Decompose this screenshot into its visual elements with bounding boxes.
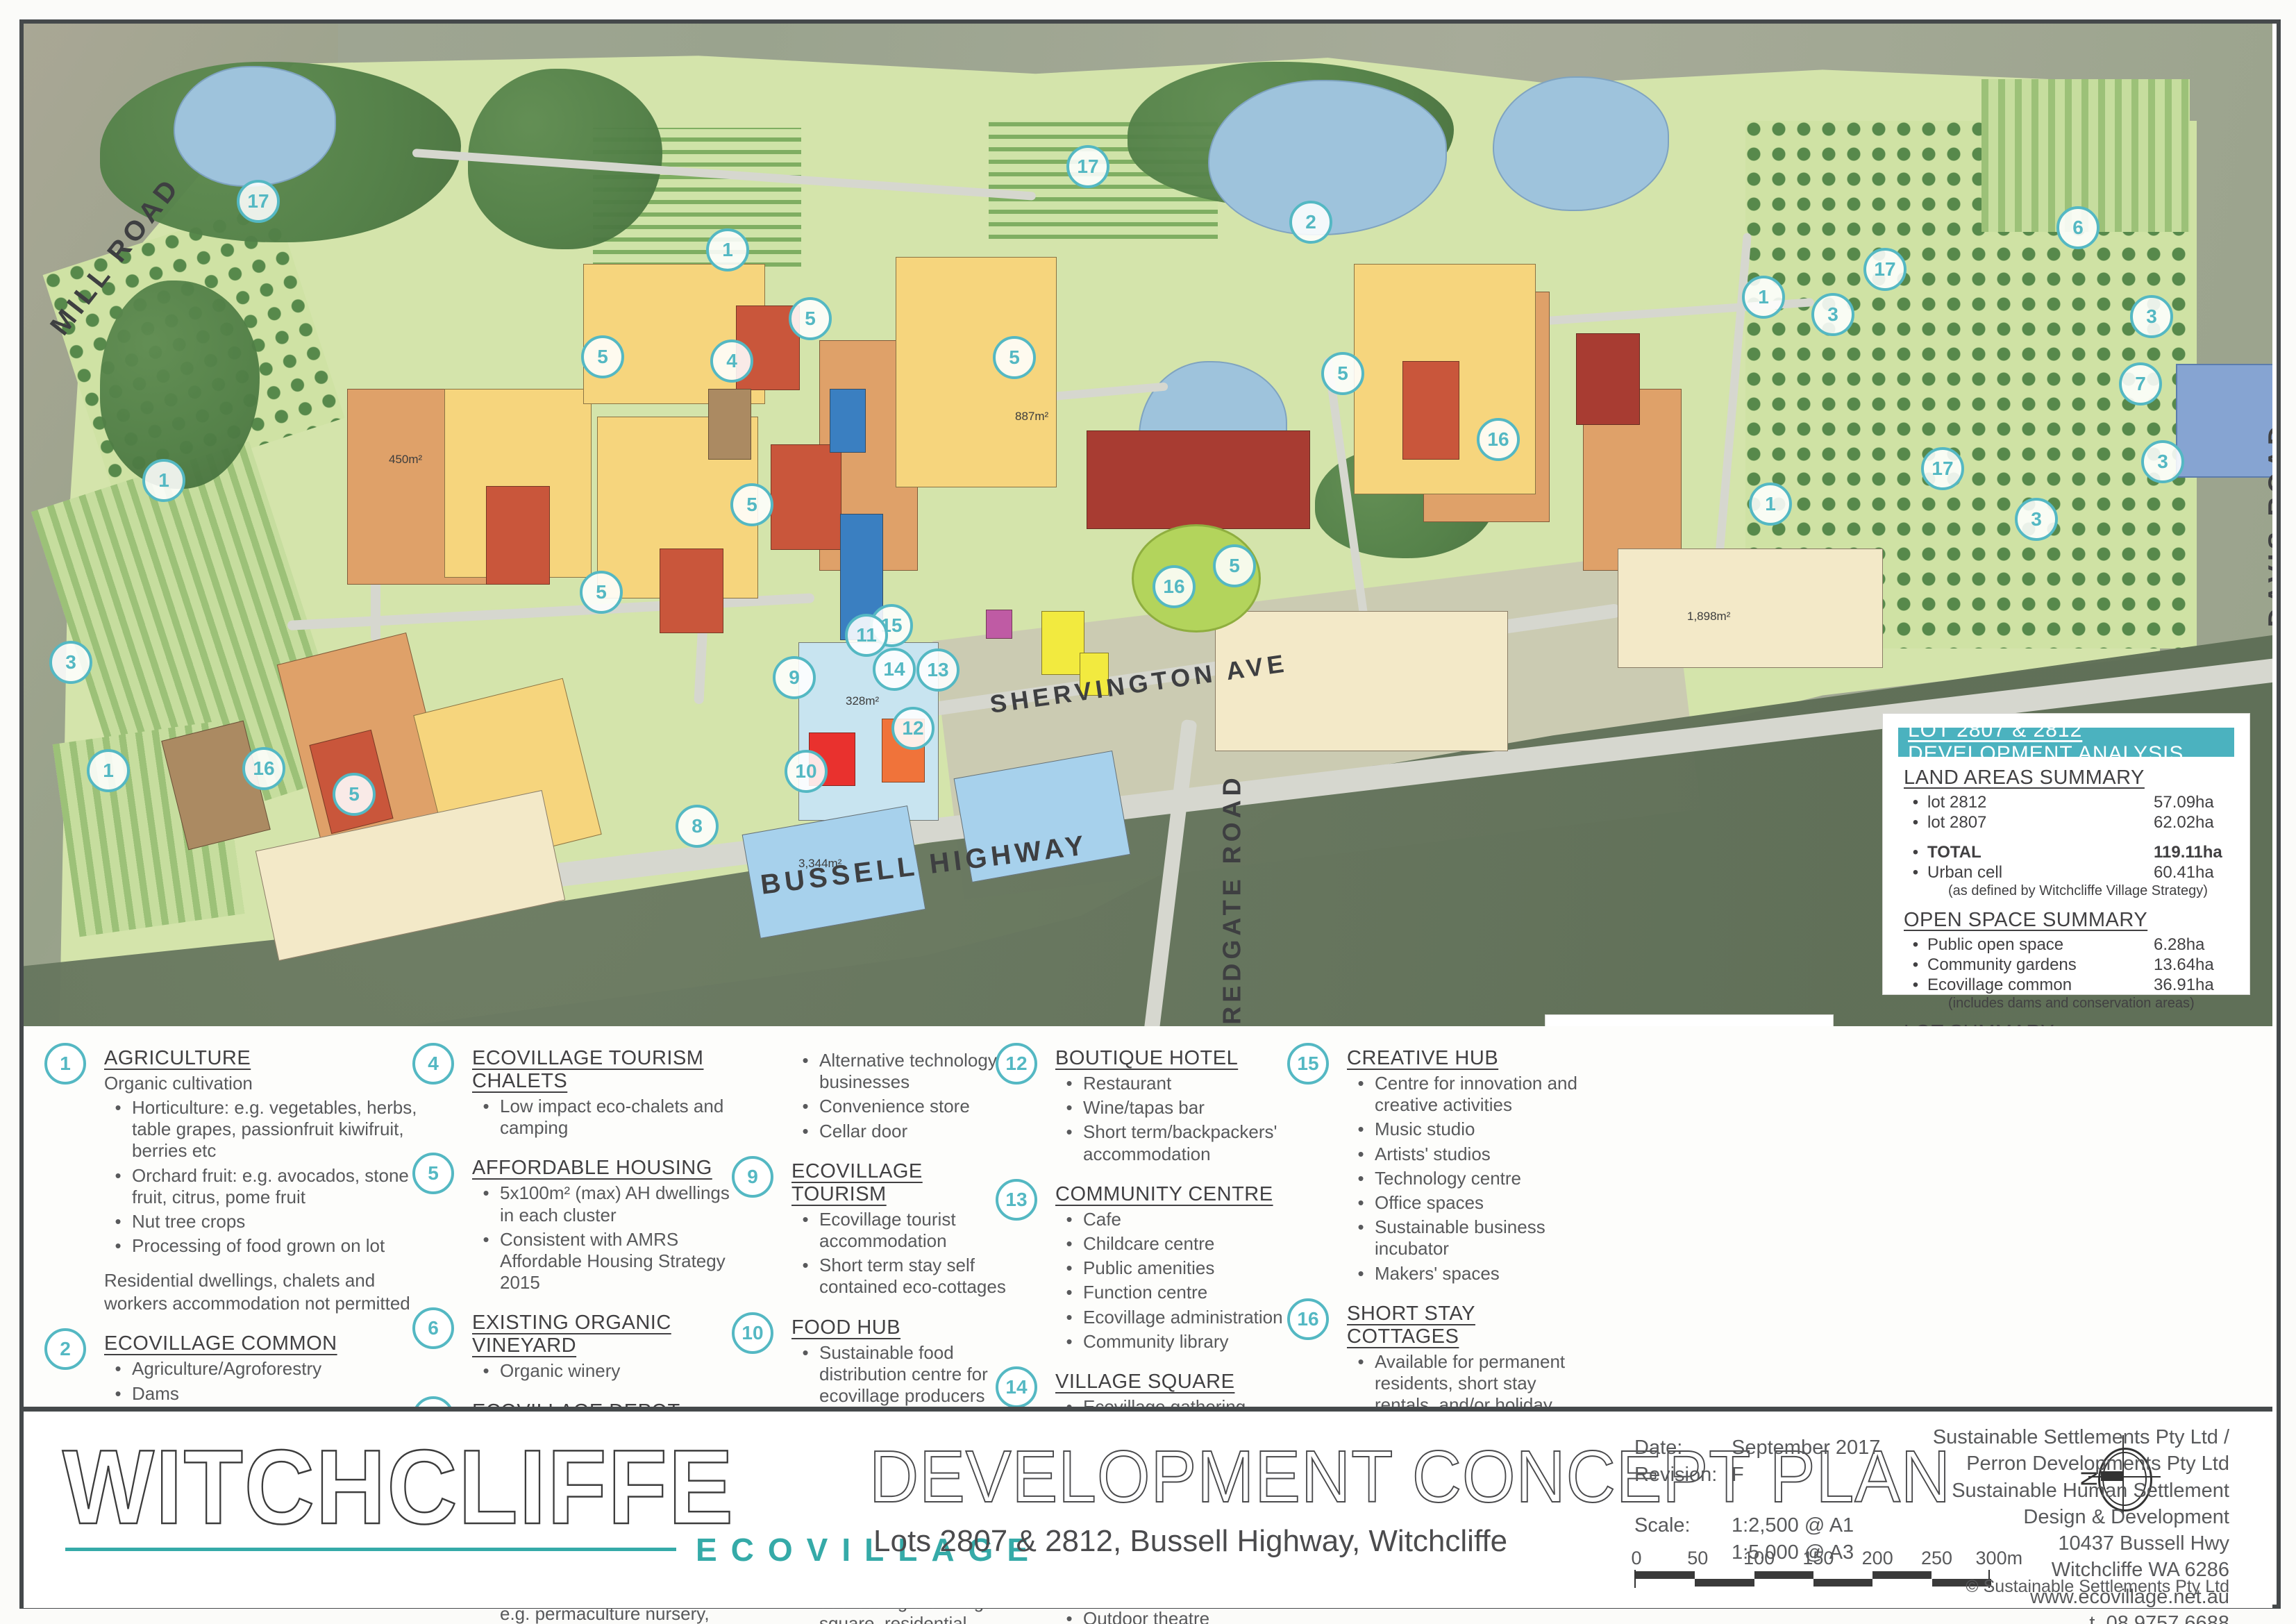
- map-marker-16: 16: [1477, 418, 1520, 461]
- note-bullet: •Organic winery: [472, 1360, 739, 1382]
- map-marker-3: 3: [2130, 295, 2173, 338]
- creative-hub-lot: [986, 610, 1012, 639]
- note-bullet: •Sustainable business incubator: [1347, 1216, 1586, 1259]
- note-bullet: •Ecovillage administration: [1055, 1307, 1287, 1328]
- analysis-note: (includes dams and conservation areas): [1904, 995, 2237, 1012]
- note-number-badge: 14: [996, 1366, 1037, 1408]
- notes-area: 1AGRICULTUREOrganic cultivation•Horticul…: [24, 1026, 2272, 1407]
- map-marker-14: 14: [873, 648, 916, 691]
- analysis-row: [1904, 832, 2237, 842]
- date-label: Date:: [1634, 1437, 1732, 1459]
- note-number-badge: 10: [732, 1312, 773, 1354]
- title-block: WITCHCLIFFE ECOVILLAGE DEVELOPMENT CONCE…: [24, 1407, 2272, 1608]
- analysis-section: LAND AREAS SUMMARY•lot 281257.09ha•lot 2…: [1904, 767, 2237, 899]
- scalebar-label: 100: [1743, 1548, 1775, 1569]
- note-number-badge: 13: [996, 1179, 1037, 1221]
- map-marker-3: 3: [2015, 498, 2058, 541]
- scalebar-label: 150: [1802, 1548, 1834, 1569]
- map-marker-5: 5: [993, 336, 1036, 379]
- map-marker-1: 1: [87, 749, 130, 792]
- note-title: SHORT STAY COTTAGES: [1347, 1303, 1586, 1348]
- scale-label: Scale:: [1634, 1514, 1732, 1537]
- road-label-davis: DAVIS ROAD: [2263, 422, 2272, 628]
- note-bullet: •Low impact eco-chalets and camping: [472, 1096, 739, 1139]
- note-bullet: •Agriculture/Agroforestry: [104, 1358, 419, 1380]
- note-number-badge: 5: [412, 1153, 454, 1194]
- affordable-housing-cluster: [486, 486, 550, 585]
- note-bullet: •Childcare centre: [1055, 1233, 1287, 1255]
- analysis-row: •Urban cell60.41ha: [1904, 862, 2237, 882]
- note-number-badge: 1: [44, 1043, 86, 1085]
- note-bullet: •Technology centre: [1347, 1168, 1586, 1189]
- note-bullet: •Restaurant: [1055, 1073, 1287, 1094]
- note-section-4: 4ECOVILLAGE TOURISM CHALETS•Low impact e…: [412, 1047, 739, 1139]
- note-bullet: •Processing of food grown on lot: [104, 1235, 419, 1257]
- map-marker-17: 17: [237, 180, 280, 223]
- lifestyle-lot-row: [1618, 549, 1883, 668]
- note-bullet: •Cafe: [1055, 1209, 1287, 1230]
- map-marker-2: 2: [1289, 201, 1332, 244]
- map-marker-5: 5: [1321, 352, 1364, 395]
- map-marker-5: 5: [580, 571, 623, 614]
- note-bullet: •Short term stay self contained eco-cott…: [791, 1255, 1009, 1298]
- aged-dependent-lots: [1576, 333, 1640, 425]
- scalebar-label: 50: [1687, 1548, 1708, 1569]
- analysis-heading: OPEN SPACE SUMMARY: [1904, 909, 2237, 932]
- note-bullet: •Community library: [1055, 1331, 1287, 1353]
- map-marker-5: 5: [789, 297, 832, 340]
- note-number-badge: 12: [996, 1043, 1037, 1085]
- logo-underline: [65, 1548, 676, 1551]
- map-marker-1: 1: [706, 228, 749, 271]
- note-bullet: •Consistent with AMRS Affordable Housing…: [472, 1229, 739, 1294]
- revision-value: F: [1732, 1464, 1744, 1487]
- map-marker-11: 11: [845, 614, 888, 657]
- analysis-section: OPEN SPACE SUMMARY•Public open space6.28…: [1904, 909, 2237, 1012]
- map-marker-16: 16: [242, 747, 285, 790]
- note-section-13: 13COMMUNITY CENTRE•Cafe•Childcare centre…: [996, 1183, 1287, 1353]
- note-title: CREATIVE HUB: [1347, 1047, 1586, 1070]
- affordable-housing-cluster: [1402, 361, 1459, 460]
- note-bullet: •Artists' studios: [1347, 1144, 1586, 1165]
- company-line: Design & Development: [1933, 1504, 2229, 1530]
- map-marker-9: 9: [773, 656, 816, 699]
- lot-size-label: 887m²: [1015, 410, 1048, 424]
- map-marker-17: 17: [1863, 248, 1907, 291]
- note-bullet: •Office spaces: [1347, 1192, 1586, 1214]
- lot-size-label: 1,898m²: [1687, 610, 1730, 623]
- map-marker-3: 3: [1811, 293, 1854, 336]
- note-number-badge: 6: [412, 1307, 454, 1349]
- map-marker-1: 1: [1749, 483, 1792, 526]
- note-number-badge: 16: [1287, 1298, 1329, 1340]
- date-value: September 2017: [1732, 1437, 1880, 1459]
- map-marker-17: 17: [1921, 447, 1964, 490]
- development-analysis-panel: LOT 2807 & 2812 DEVELOPMENT ANALYSIS LAN…: [1883, 714, 2249, 994]
- map-marker-3: 3: [49, 641, 92, 684]
- scalebar-label: 0: [1631, 1548, 1641, 1569]
- lot-size-label: 3,344m²: [798, 857, 841, 871]
- map-marker-8: 8: [676, 805, 719, 848]
- note-section-12: 12BOUTIQUE HOTEL•Restaurant•Wine/tapas b…: [996, 1047, 1287, 1165]
- note-number-badge: 9: [732, 1156, 773, 1198]
- family-lot-cluster: [896, 257, 1057, 487]
- analysis-title-bar: LOT 2807 & 2812 DEVELOPMENT ANALYSIS: [1898, 728, 2234, 757]
- analysis-heading: LAND AREAS SUMMARY: [1904, 767, 2237, 789]
- note-section-9: 9ECOVILLAGE TOURISM•Ecovillage tourist a…: [732, 1160, 1009, 1298]
- community-centre-lot: [1041, 611, 1084, 675]
- map-marker-10: 10: [785, 750, 828, 793]
- note-number-badge: 2: [44, 1328, 86, 1370]
- note-bullet: •Short term/backpackers' accommodation: [1055, 1121, 1287, 1164]
- lot-size-label: 328m²: [846, 694, 879, 708]
- map-marker-1: 1: [142, 459, 185, 502]
- map-marker-1: 1: [1742, 276, 1785, 319]
- map-marker-4: 4: [710, 340, 753, 383]
- analysis-row: •lot 280762.02ha: [1904, 812, 2237, 832]
- affordable-housing-cluster: [660, 549, 723, 633]
- plan-sheet: MILL ROAD SHERVINGTON AVE BUSSELL HIGHWA…: [0, 0, 2296, 1624]
- map-marker-17: 17: [1066, 145, 1109, 188]
- note-number-badge: 4: [412, 1043, 454, 1085]
- note-bullet: •Public amenities: [1055, 1257, 1287, 1279]
- note-bullet: •5x100m² (max) AH dwellings in each clus…: [472, 1182, 739, 1225]
- note-bullet: •Horticulture: e.g. vegetables, herbs, t…: [104, 1097, 419, 1162]
- aged-dependent-lots: [1087, 430, 1310, 529]
- note-bullet: •Outdoor theatre: [1055, 1608, 1287, 1624]
- scale-a1: 1:2,500 @ A1: [1732, 1514, 1854, 1537]
- map-marker-6: 6: [2056, 206, 2100, 249]
- analysis-row: •lot 281257.09ha: [1904, 792, 2237, 812]
- map-marker-16: 16: [1153, 565, 1196, 608]
- lot-size-label: 450m²: [389, 453, 422, 467]
- note-bullet: •Centre for innovation and creative acti…: [1347, 1073, 1586, 1116]
- note-title: AFFORDABLE HOUSING: [472, 1157, 739, 1180]
- map-marker-5: 5: [1213, 544, 1256, 587]
- note-bullet: •Music studio: [1347, 1119, 1586, 1140]
- analysis-row: •Public open space6.28ha: [1904, 935, 2237, 955]
- scalebar-label: 200: [1862, 1548, 1893, 1569]
- note-section-1: 1AGRICULTUREOrganic cultivation•Horticul…: [44, 1047, 419, 1314]
- cottage-short-stay-lots: [708, 389, 751, 460]
- map-marker-12: 12: [891, 707, 935, 750]
- note-bullet: •Dams: [104, 1383, 419, 1405]
- note-section-6: 6EXISTING ORGANIC VINEYARD•Organic winer…: [412, 1312, 739, 1382]
- map-marker-5: 5: [581, 335, 624, 378]
- note-number-badge: 15: [1287, 1043, 1329, 1085]
- company-line: Perron Developments Pty Ltd: [1933, 1450, 2229, 1477]
- forest-patch: [100, 281, 260, 489]
- page-subtitle: Lots 2807 & 2812, Bussell Highway, Witch…: [873, 1524, 1507, 1559]
- map-marker-5: 5: [333, 773, 376, 816]
- analysis-row: •Ecovillage common36.91ha: [1904, 975, 2237, 995]
- note-section-5: 5AFFORDABLE HOUSING•5x100m² (max) AH dwe…: [412, 1157, 739, 1294]
- affordable-housing-cluster: [771, 444, 841, 550]
- note-title: EXISTING ORGANIC VINEYARD: [472, 1312, 739, 1357]
- note-section-15: 15CREATIVE HUB•Centre for innovation and…: [1287, 1047, 1586, 1284]
- witchcliffe-logo: WITCHCLIFFE: [62, 1427, 735, 1548]
- note-title: VILLAGE SQUARE: [1055, 1371, 1287, 1393]
- note-bullet: •Ecovillage tourist accommodation: [791, 1209, 1009, 1252]
- company-line: Sustainable Settlements Pty Ltd /: [1933, 1424, 2229, 1450]
- analysis-row: •Community gardens13.64ha: [1904, 955, 2237, 975]
- note-title: ECOVILLAGE TOURISM: [791, 1160, 1009, 1206]
- company-line: 10437 Bussell Hwy: [1933, 1530, 2229, 1557]
- note-title: ECOVILLAGE COMMON: [104, 1332, 419, 1355]
- note-title: AGRICULTURE: [104, 1047, 419, 1070]
- note-bullet: •Orchard fruit: e.g. avocados, stone fru…: [104, 1165, 419, 1208]
- note-section: •Alternative technology businesses•Conve…: [732, 1050, 1009, 1142]
- note-bullet: •Alternative technology businesses: [791, 1050, 1009, 1093]
- map-marker-5: 5: [730, 483, 773, 526]
- ecovillage-tourism-lots: [830, 389, 866, 453]
- company-line: Sustainable Human Settlement: [1933, 1477, 2229, 1504]
- note-bullet: •Nut tree crops: [104, 1211, 419, 1232]
- map-marker-7: 7: [2119, 362, 2162, 405]
- dam-square: [2176, 364, 2272, 478]
- copyright-text: © Sustainable Settlements Pty Ltd: [1966, 1577, 2229, 1597]
- note-title: BOUTIQUE HOTEL: [1055, 1047, 1287, 1070]
- company-line: t. 08 9757 6688: [1933, 1610, 2229, 1624]
- note-title: ECOVILLAGE TOURISM CHALETS: [472, 1047, 739, 1093]
- map-marker-3: 3: [2141, 440, 2184, 483]
- map-marker-13: 13: [916, 648, 960, 692]
- note-title: COMMUNITY CENTRE: [1055, 1183, 1287, 1206]
- note-title: FOOD HUB: [791, 1316, 1009, 1339]
- note-bullet: •Function centre: [1055, 1282, 1287, 1303]
- note-bullet: •Convenience store: [791, 1096, 1009, 1117]
- road-label-redgate: REDGATE ROAD: [1218, 773, 1247, 1024]
- revision-label: Revision:: [1634, 1464, 1732, 1487]
- analysis-note: (as defined by Witchcliffe Village Strat…: [1904, 882, 2237, 899]
- note-bullet: •Cellar door: [791, 1121, 1009, 1142]
- analysis-row: •TOTAL119.11ha: [1904, 842, 2237, 862]
- note-bullet: •Wine/tapas bar: [1055, 1097, 1287, 1119]
- note-bullet: •Makers' spaces: [1347, 1263, 1586, 1284]
